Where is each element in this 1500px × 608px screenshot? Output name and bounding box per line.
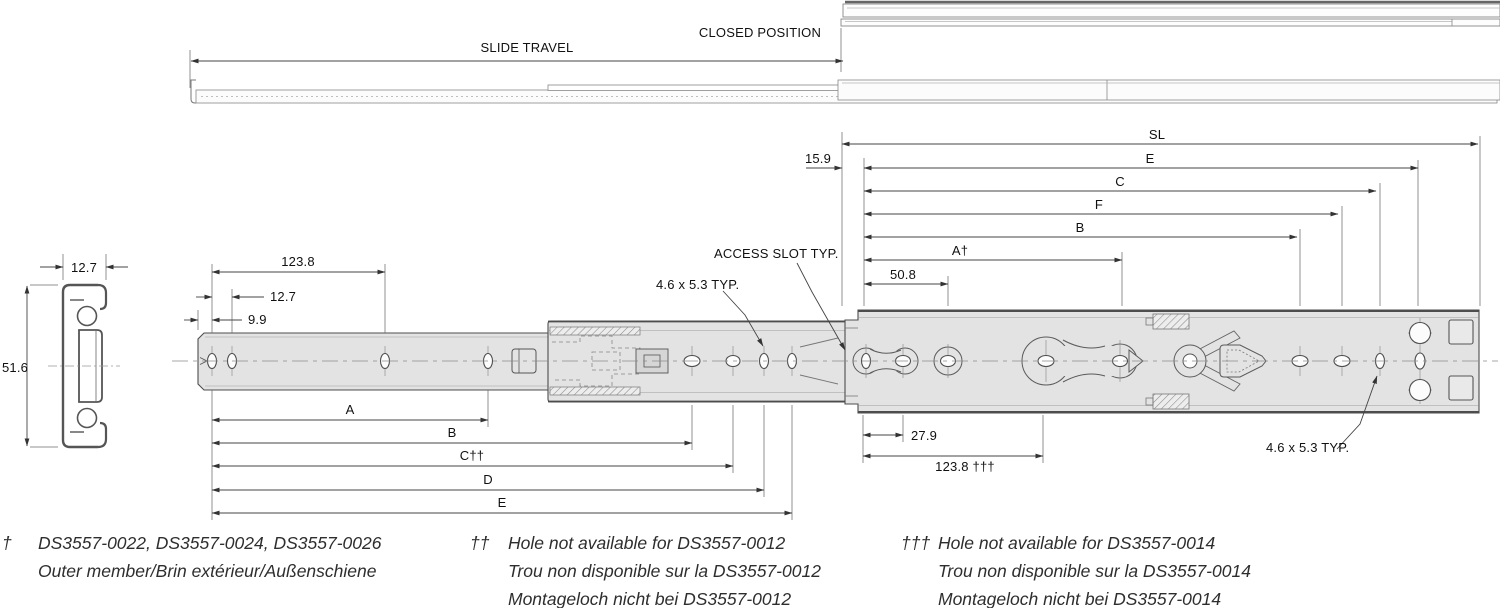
dim-label-123-8-daggers: 123.8 ††† [935,459,995,474]
retainer-end-cap-top [1153,314,1189,329]
ball-retainer-strip-bottom [550,387,640,395]
square-cutout-bottom [1449,376,1473,400]
dim-label-a-bottom: A [346,402,355,417]
dim-label-123-8: 123.8 [281,254,315,269]
dim-label-50-8: 50.8 [890,267,916,282]
dim-label-sl: SL [1149,127,1165,142]
footnote-dagger: † DS3557-0022, DS3557-0024, DS3557-0026 … [2,529,381,585]
footnote-line: DS3557-0022, DS3557-0024, DS3557-0026 [38,529,381,557]
section-width-label: 12.7 [71,260,97,275]
footnote-double-dagger: †† Hole not available for DS3557-0012 Tr… [470,529,821,608]
dim-label-b-top: B [1076,220,1085,235]
footnote-triple-dagger: ††† Hole not available for DS3557-0014 T… [901,529,1251,608]
footnote-marker: ††† [901,529,938,608]
section-height-label: 51.6 [2,360,28,375]
footnote-marker: † [2,529,38,585]
drawing-canvas: SLIDE TRAVEL CLOSED POSITION SL E C F B … [0,0,1500,529]
footnote-line: Montageloch nicht bei DS3557-0012 [508,585,821,608]
ball-bearing-top [78,307,97,326]
inner-member [198,333,552,390]
hole-size-mid-callout: 4.6 x 5.3 TYP. [656,277,739,292]
dim-label-c-top: C [1115,174,1125,189]
front-hook-profile [191,80,196,103]
retainer-end-cap-bottom [1153,394,1189,409]
footnote-line: Hole not available for DS3557-0012 [508,529,821,557]
dim-label-15-9: 15.9 [805,151,831,166]
dim-label-d-bottom: D [483,472,493,487]
dim-label-c-daggers: C†† [460,448,484,463]
footnote-line: Trou non disponible sur la DS3557-0012 [508,557,821,585]
ball-bearing-bottom [78,409,97,428]
dim-label-e-bottom: E [498,495,507,510]
access-slot-callout: ACCESS SLOT TYP. [714,246,839,261]
dim-label-b-bottom: B [448,425,457,440]
technical-drawing-page: SLIDE TRAVEL CLOSED POSITION SL E C F B … [0,0,1500,608]
dim-label-27-9: 27.9 [911,428,937,443]
hole-size-right-callout: 4.6 x 5.3 TYP. [1266,440,1349,455]
footnote-line: Hole not available for DS3557-0014 [938,529,1251,557]
slide-travel-label: SLIDE TRAVEL [481,40,574,55]
footnote-line: Trou non disponible sur la DS3557-0014 [938,557,1251,585]
footnote-marker: †† [470,529,508,608]
closed-position-view [841,2,1500,26]
footnote-line: Outer member/Brin extérieur/Außenschiene [38,557,381,585]
ball-retainer-strip-top [550,327,640,335]
dimension-lines [27,61,1478,513]
main-assembly-view [172,310,1498,413]
dim-label-f-top: F [1095,197,1103,212]
cross-section-view [48,285,120,447]
dim-label-9-9: 9.9 [248,312,267,327]
dim-label-a-dagger: A† [952,243,968,258]
square-cutout-top [1449,320,1473,344]
dim-label-12-7: 12.7 [270,289,296,304]
dim-label-e-top: E [1146,151,1155,166]
footnote-line: Montageloch nicht bei DS3557-0014 [938,585,1251,608]
extended-side-view [191,80,1500,103]
closed-position-label: CLOSED POSITION [699,25,821,40]
